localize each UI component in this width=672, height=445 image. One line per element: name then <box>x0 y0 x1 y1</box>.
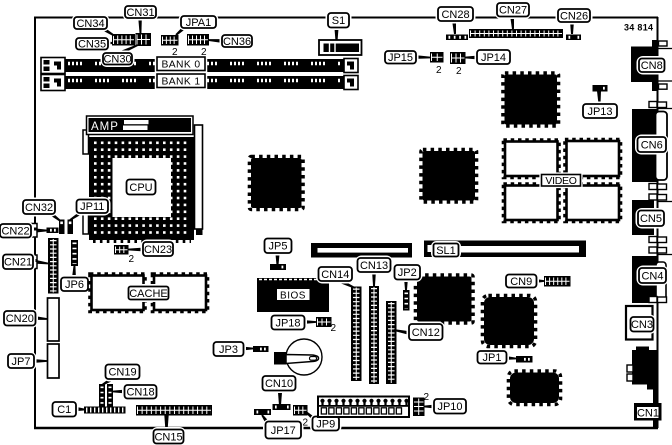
svg-text:CN28: CN28 <box>441 9 469 21</box>
svg-text:CN21: CN21 <box>4 257 32 269</box>
svg-text:CN32: CN32 <box>25 202 53 214</box>
svg-text:CN15: CN15 <box>154 432 182 444</box>
svg-text:JP7: JP7 <box>12 356 31 368</box>
svg-text:CACHE: CACHE <box>129 288 168 300</box>
svg-text:CPU: CPU <box>129 182 152 194</box>
svg-text:2: 2 <box>303 418 309 429</box>
svg-text:VIDEO: VIDEO <box>545 175 576 187</box>
svg-text:2: 2 <box>201 47 207 58</box>
svg-text:2: 2 <box>331 323 337 334</box>
svg-text:JP17: JP17 <box>271 425 296 437</box>
svg-text:CN36: CN36 <box>223 36 251 48</box>
svg-text:CN14: CN14 <box>321 269 349 281</box>
svg-text:JP13: JP13 <box>587 106 612 118</box>
svg-text:JP5: JP5 <box>269 241 288 253</box>
svg-text:JPA1: JPA1 <box>186 17 211 29</box>
svg-text:CN9: CN9 <box>510 276 532 288</box>
svg-text:SL1: SL1 <box>436 245 456 257</box>
svg-text:CN27: CN27 <box>499 5 527 17</box>
svg-text:2: 2 <box>129 254 135 265</box>
svg-text:CN19: CN19 <box>108 367 136 379</box>
svg-text:C1: C1 <box>57 404 71 416</box>
svg-text:CN34: CN34 <box>76 18 104 30</box>
svg-text:34 814: 34 814 <box>624 23 653 33</box>
svg-text:CN4: CN4 <box>641 271 663 283</box>
svg-text:2: 2 <box>436 65 442 76</box>
svg-text:CN6: CN6 <box>641 140 663 152</box>
svg-text:JP2: JP2 <box>398 267 417 279</box>
svg-text:2: 2 <box>172 47 178 58</box>
svg-text:CN31: CN31 <box>126 7 154 19</box>
svg-text:CN3: CN3 <box>631 319 653 331</box>
svg-text:JP18: JP18 <box>275 318 300 330</box>
svg-text:CN22: CN22 <box>1 226 29 238</box>
svg-text:JP1: JP1 <box>483 352 502 364</box>
svg-text:JP15: JP15 <box>388 52 413 64</box>
svg-text:CN18: CN18 <box>126 387 154 399</box>
svg-text:JP11: JP11 <box>80 201 104 213</box>
svg-text:JP6: JP6 <box>65 279 84 291</box>
svg-text:JP9: JP9 <box>316 419 335 431</box>
svg-text:CN1: CN1 <box>637 408 659 420</box>
svg-text:CN13: CN13 <box>360 260 388 272</box>
svg-text:CN35: CN35 <box>78 39 106 51</box>
svg-text:CN20: CN20 <box>6 313 34 325</box>
svg-text:CN12: CN12 <box>412 327 440 339</box>
svg-text:2: 2 <box>424 392 430 403</box>
svg-text:AMP: AMP <box>91 121 119 133</box>
svg-text:CN23: CN23 <box>144 244 172 256</box>
svg-text:CN30: CN30 <box>103 54 131 66</box>
svg-text:CN8: CN8 <box>641 60 663 72</box>
svg-text:CN26: CN26 <box>560 11 588 23</box>
svg-text:CN5: CN5 <box>640 213 662 225</box>
svg-text:BIOS: BIOS <box>280 291 306 302</box>
svg-text:CN10: CN10 <box>265 378 293 390</box>
svg-text:JP3: JP3 <box>219 344 238 356</box>
svg-text:BANK 1: BANK 1 <box>161 77 200 88</box>
svg-text:BANK 0: BANK 0 <box>161 60 200 71</box>
svg-text:JP14: JP14 <box>481 52 506 64</box>
svg-text:S1: S1 <box>332 15 345 27</box>
svg-text:JP10: JP10 <box>437 401 462 413</box>
svg-text:2: 2 <box>456 66 462 77</box>
